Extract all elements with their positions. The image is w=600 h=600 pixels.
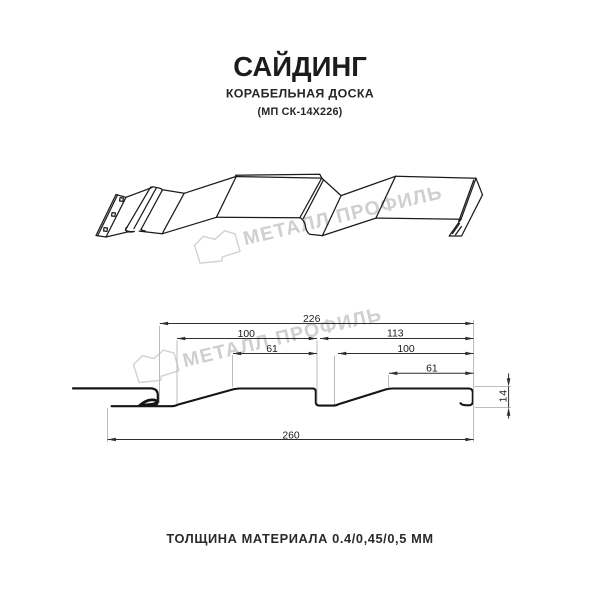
svg-text:260: 260: [282, 430, 300, 441]
svg-text:113: 113: [387, 328, 404, 339]
svg-text:МЕТАЛЛ ПРОФИЛЬ: МЕТАЛЛ ПРОФИЛЬ: [181, 303, 385, 372]
svg-text:226: 226: [303, 314, 321, 325]
svg-text:САЙДИНГ: САЙДИНГ: [233, 51, 367, 82]
svg-text:ТОЛЩИНА МАТЕРИАЛА 0.4/0,45/0,5: ТОЛЩИНА МАТЕРИАЛА 0.4/0,45/0,5 ММ: [166, 531, 433, 546]
svg-text:61: 61: [426, 364, 438, 375]
svg-text:100: 100: [397, 344, 415, 355]
svg-text:14: 14: [498, 389, 509, 402]
svg-text:61: 61: [266, 344, 278, 355]
svg-text:КОРАБЕЛЬНАЯ ДОСКА: КОРАБЕЛЬНАЯ ДОСКА: [226, 87, 374, 101]
svg-text:(МП СК-14Х226): (МП СК-14Х226): [258, 106, 343, 118]
svg-text:МЕТАЛЛ ПРОФИЛЬ: МЕТАЛЛ ПРОФИЛЬ: [241, 181, 445, 250]
svg-text:100: 100: [238, 329, 256, 340]
